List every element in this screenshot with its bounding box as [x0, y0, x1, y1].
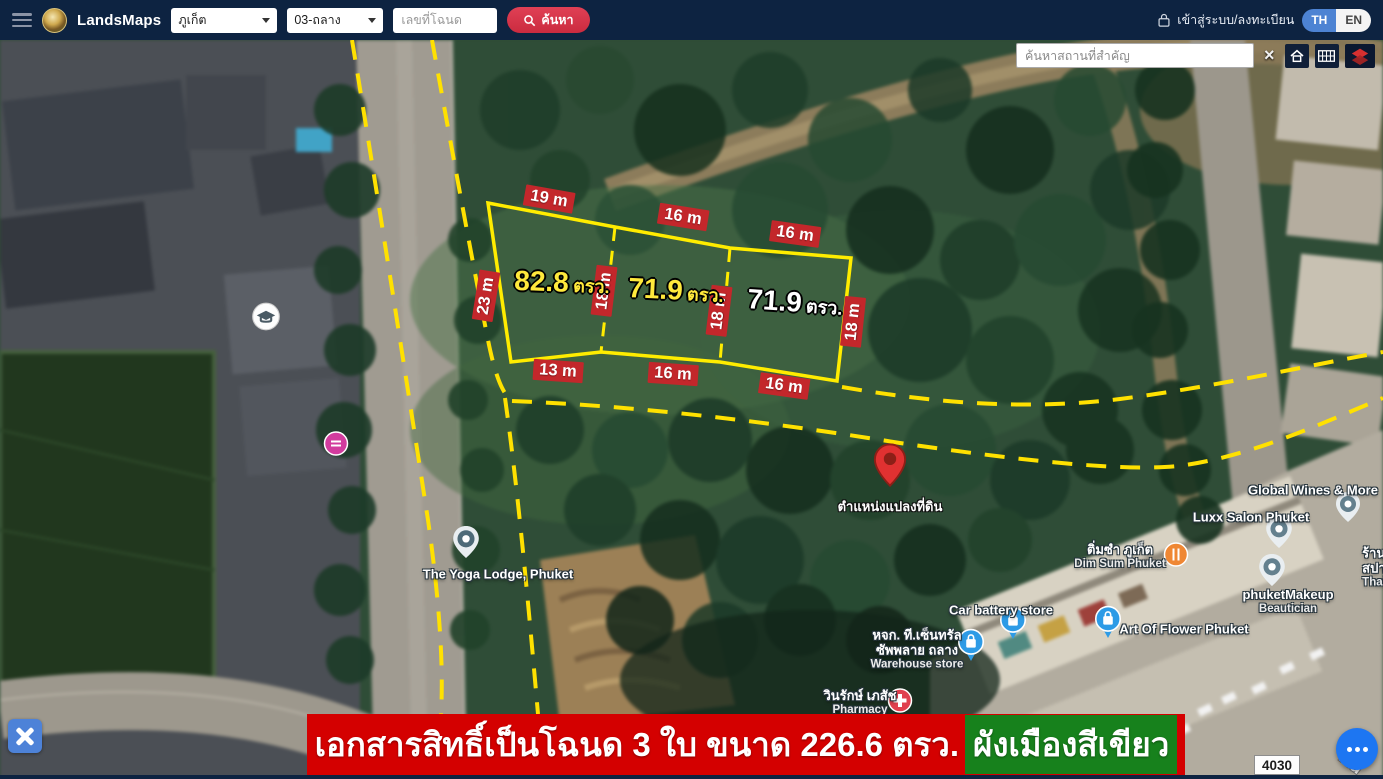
poi-label-dim-sum[interactable]: ติ่มซำ ภูเก็ต Dim Sum Phuket [1074, 543, 1165, 571]
language-toggle: TH EN [1302, 9, 1371, 32]
grid-icon [1318, 49, 1335, 63]
poi-label-warehouse[interactable]: หจก. ที.เซ็นทรัล ซัพพลาย ถลาง Warehouse … [871, 628, 964, 671]
school-pin-icon[interactable] [251, 302, 281, 337]
home-extent-button[interactable] [1285, 44, 1309, 68]
dot-icon [1363, 747, 1368, 752]
poi-label-pharmacy[interactable]: วินรักษ์ เภสัช Pharmacy [824, 689, 897, 717]
lock-icon [1157, 12, 1171, 28]
landsmaps-app: LandsMaps ภูเก็ต 03-ถลาง ค้นหา เข้าสู่ระ… [0, 0, 1383, 779]
chevron-down-icon [262, 18, 270, 23]
parcel-location-pin[interactable] [873, 443, 907, 492]
poi-label-phuket-makeup[interactable]: phuketMakeup Beautician [1242, 588, 1333, 616]
restaurant-pin-icon[interactable] [1163, 542, 1189, 573]
close-icon[interactable]: × [1260, 45, 1279, 66]
measure-tools-button[interactable] [8, 719, 42, 753]
grid-parcel-button[interactable] [1315, 44, 1339, 68]
app-title: LandsMaps [77, 12, 161, 29]
department-of-lands-logo [42, 8, 67, 33]
parcel-location-label: ตำแหน่งแปลงที่ดิน [838, 496, 943, 517]
search-button[interactable]: ค้นหา [507, 7, 589, 33]
plot-area-label: 71.9 ตรว. [627, 272, 724, 310]
poi-label-global-wines[interactable]: Global Wines & More [1248, 484, 1378, 499]
deed-summary-banner: เอกสารสิทธิ์เป็นโฉนด 3 ใบ ขนาด 226.6 ตรว… [307, 714, 1185, 775]
edge-length-label: 13 m [533, 359, 584, 383]
poi-label-car-battery[interactable]: Car battery store [949, 604, 1053, 619]
store-pin-icon[interactable] [1094, 605, 1122, 644]
edge-length-label: 16 m [648, 362, 699, 386]
place-search-input[interactable] [1016, 43, 1254, 68]
layers-icon [1350, 47, 1370, 65]
poi-label-yoga-lodge[interactable]: The Yoga Lodge, Phuket [423, 568, 573, 583]
plot-area-label: 82.8 ตรว. [514, 265, 611, 301]
satellite-map-canvas[interactable] [0, 0, 1383, 779]
poi-label-luxx-salon[interactable]: Luxx Salon Phuket [1193, 511, 1309, 526]
dot-icon [1355, 747, 1360, 752]
poi-label-spa-partial[interactable]: ร้าน สปา Thai [1362, 546, 1383, 589]
login-register-link[interactable]: เข้าสู่ระบบ/ลงทะเบียน [1157, 10, 1294, 30]
deed-number-input[interactable] [393, 8, 497, 33]
chevron-down-icon [368, 18, 376, 23]
route-number-label: 4030 [1254, 755, 1300, 775]
plot-area-label: 71.9 ตรว. [746, 283, 843, 323]
home-icon [1289, 48, 1305, 64]
layers-button[interactable] [1345, 44, 1375, 68]
bottom-bar [0, 775, 1383, 779]
poi-label-art-of-flower[interactable]: Art Of Flower Phuket [1119, 623, 1248, 638]
province-select[interactable]: ภูเก็ต [171, 8, 277, 33]
more-options-button[interactable] [1336, 728, 1378, 770]
place-pin-icon[interactable] [1258, 554, 1286, 591]
branch-select[interactable]: 03-ถลาง [287, 8, 383, 33]
map-search-toolbar: × [1016, 43, 1375, 68]
lang-th-button[interactable]: TH [1302, 9, 1336, 32]
deed-summary-text: เอกสารสิทธิ์เป็นโฉนด 3 ใบ ขนาด 226.6 ตรว… [315, 718, 959, 771]
top-navbar: LandsMaps ภูเก็ต 03-ถลาง ค้นหา เข้าสู่ระ… [0, 0, 1383, 40]
lang-en-button[interactable]: EN [1336, 9, 1371, 32]
place-pin-icon[interactable] [452, 526, 480, 563]
dot-icon [1347, 747, 1352, 752]
shop-pin-icon[interactable] [323, 431, 349, 462]
menu-hamburger-icon[interactable] [12, 13, 32, 27]
search-icon [523, 14, 536, 27]
zoning-highlight: ผังเมืองสีเขียว [965, 715, 1177, 774]
